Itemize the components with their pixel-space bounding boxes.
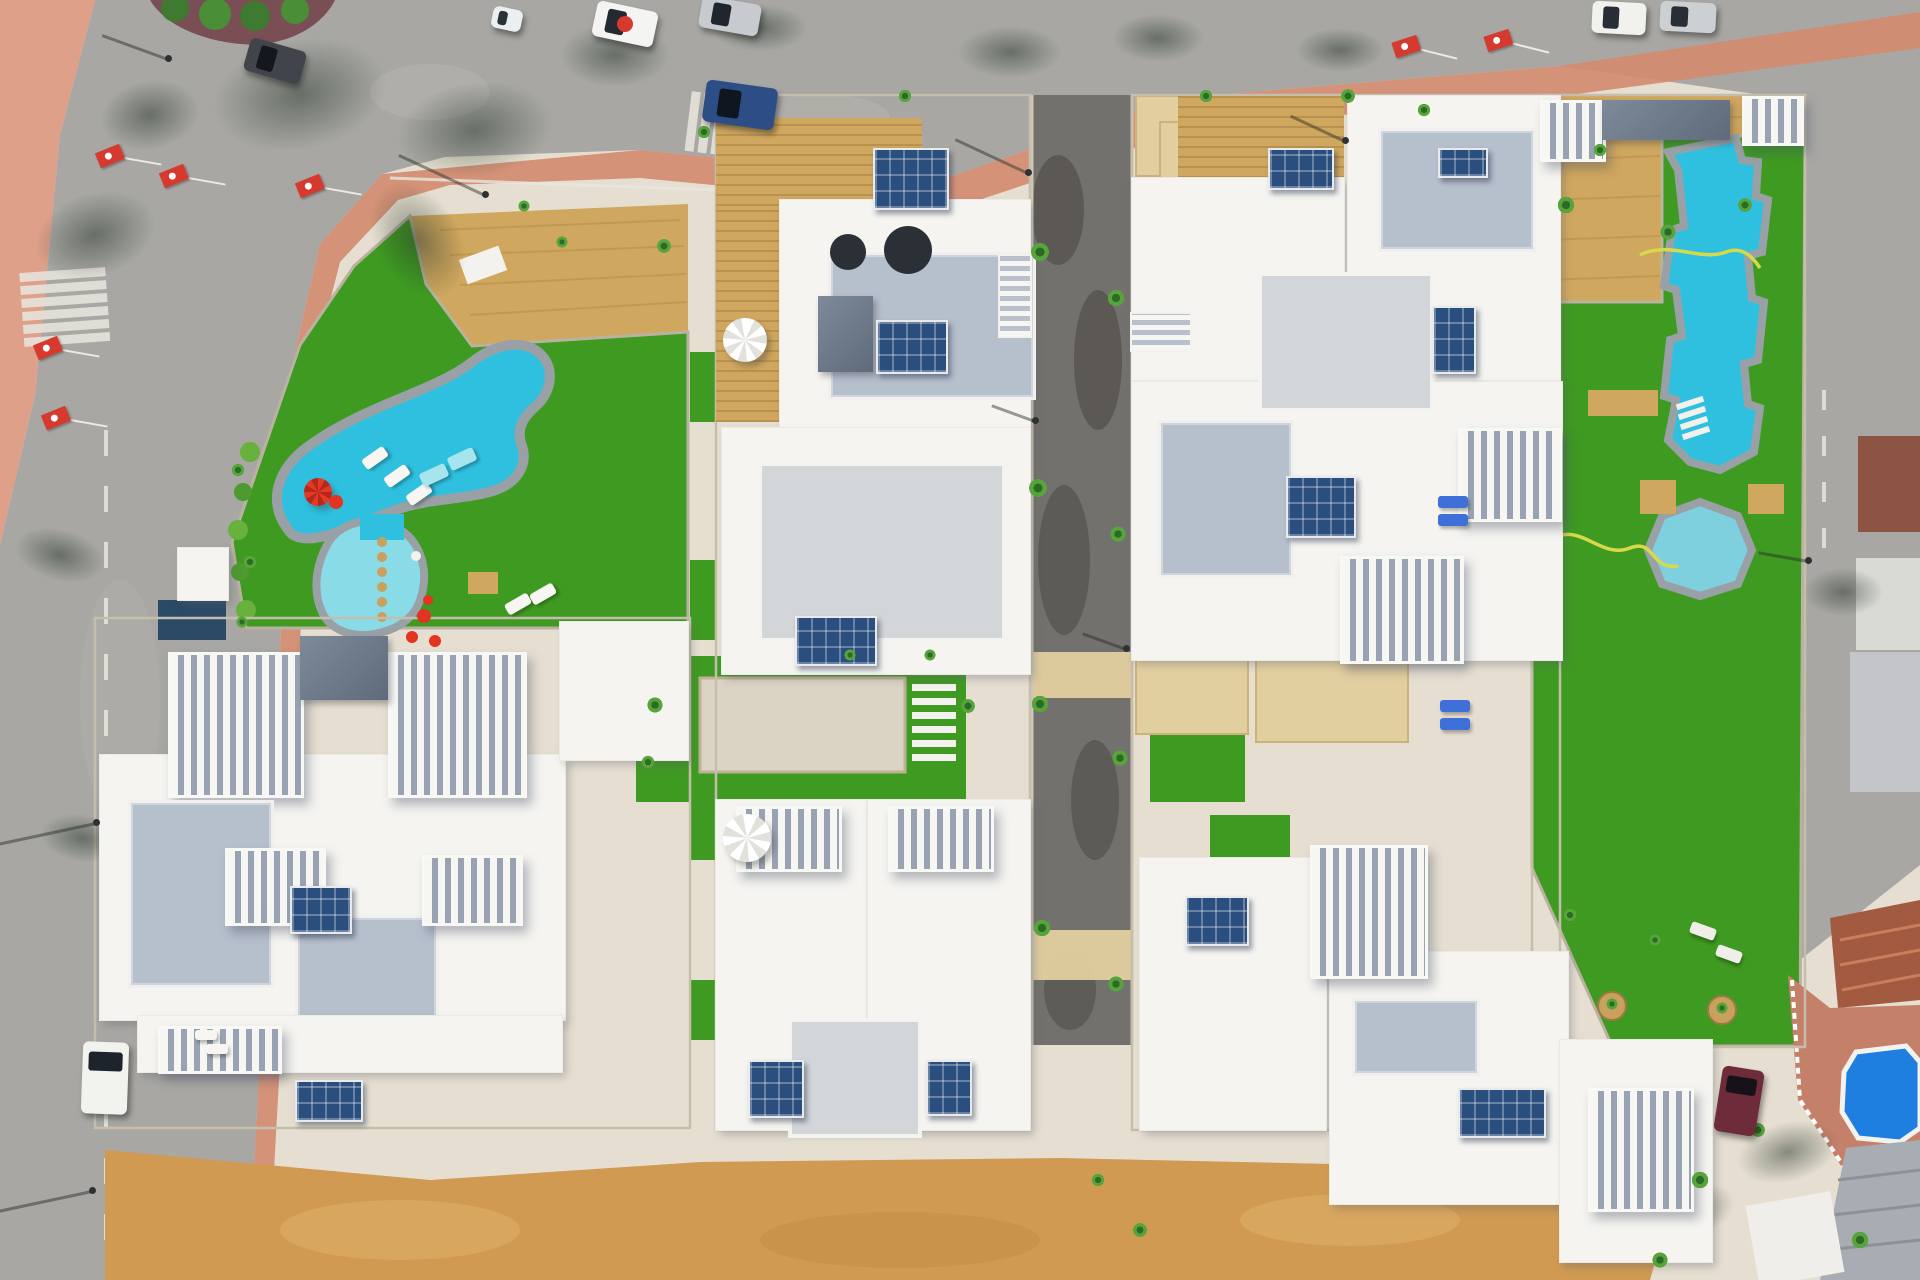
aerial-photo-stage	[0, 0, 1920, 1280]
dirt-blotch	[1240, 1194, 1460, 1246]
border-plant	[228, 520, 248, 540]
brick-patio	[1858, 436, 1920, 532]
border-plant	[234, 483, 252, 501]
lawn-wood-pallet	[468, 572, 498, 594]
asphalt-blotch	[1038, 485, 1090, 635]
asphalt-blotch	[1074, 290, 1122, 430]
pool-wood-wedge	[1748, 484, 1784, 514]
border-plant	[231, 563, 249, 581]
right-pool	[1664, 138, 1768, 470]
road-wear-patch	[80, 580, 160, 820]
small-blue-pool	[1842, 1046, 1920, 1142]
pool-wood-wedge	[1640, 480, 1676, 514]
paved-crossing	[1032, 930, 1132, 980]
lawn-wood-bridge	[1588, 390, 1658, 416]
border-plant	[240, 442, 260, 462]
dirt-blotch	[280, 1200, 520, 1260]
utility-basin	[158, 600, 226, 640]
pool-connection	[360, 514, 404, 540]
courtyard-patio	[700, 678, 905, 772]
neighbour-building	[1856, 558, 1920, 650]
neighbour-building	[1850, 652, 1920, 792]
paved-crossing	[1032, 652, 1132, 698]
spa-octagon	[1648, 502, 1752, 596]
neighbour-building	[1746, 1191, 1845, 1280]
terrain-art	[0, 0, 1920, 1280]
road-wear-patch	[750, 94, 890, 142]
asphalt-blotch	[1032, 155, 1084, 265]
dirt-blotch	[760, 1212, 1040, 1268]
planter-pot	[1598, 992, 1626, 1020]
planter-pot	[1708, 996, 1736, 1024]
asphalt-blotch	[1071, 740, 1119, 860]
hedge-bush	[240, 1, 270, 31]
road-wear-patch	[370, 64, 490, 120]
